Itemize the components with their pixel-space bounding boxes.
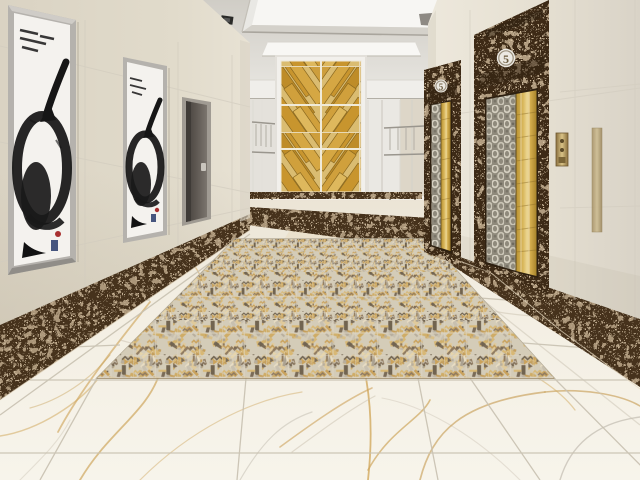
- svg-text:5: 5: [503, 52, 509, 66]
- svg-text:5: 5: [439, 82, 444, 92]
